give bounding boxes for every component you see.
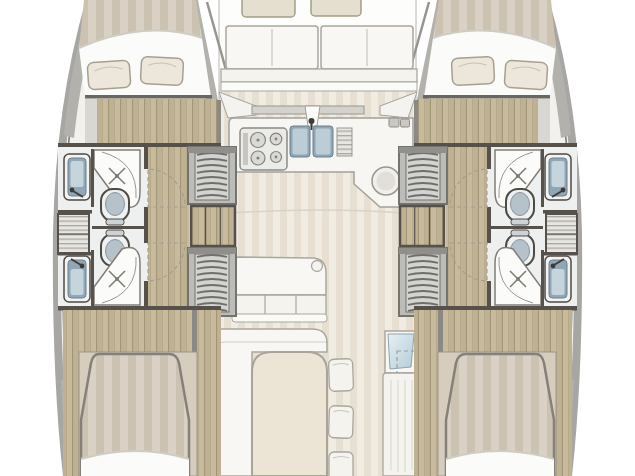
small-appliance bbox=[389, 118, 399, 127]
port-hull bbox=[57, 0, 236, 476]
cooktop bbox=[240, 128, 287, 170]
nav-unit bbox=[383, 331, 419, 476]
cockpit-step bbox=[221, 82, 417, 91]
starboard-hull bbox=[399, 0, 578, 476]
small-appliance bbox=[401, 119, 410, 127]
salon-settee bbox=[232, 257, 327, 322]
catamaran-floor-plan bbox=[0, 0, 635, 476]
cockpit-bench bbox=[221, 69, 417, 82]
bow-cushion-right bbox=[311, 0, 361, 16]
stool bbox=[328, 359, 353, 392]
stool bbox=[329, 452, 353, 476]
drainer-board bbox=[337, 128, 352, 156]
corner-detail bbox=[312, 261, 323, 272]
settee-front-lip bbox=[232, 314, 327, 322]
stool bbox=[328, 406, 353, 439]
dining-table bbox=[252, 352, 327, 476]
bow-cushion-left bbox=[242, 0, 295, 17]
settee-seats bbox=[234, 295, 326, 316]
